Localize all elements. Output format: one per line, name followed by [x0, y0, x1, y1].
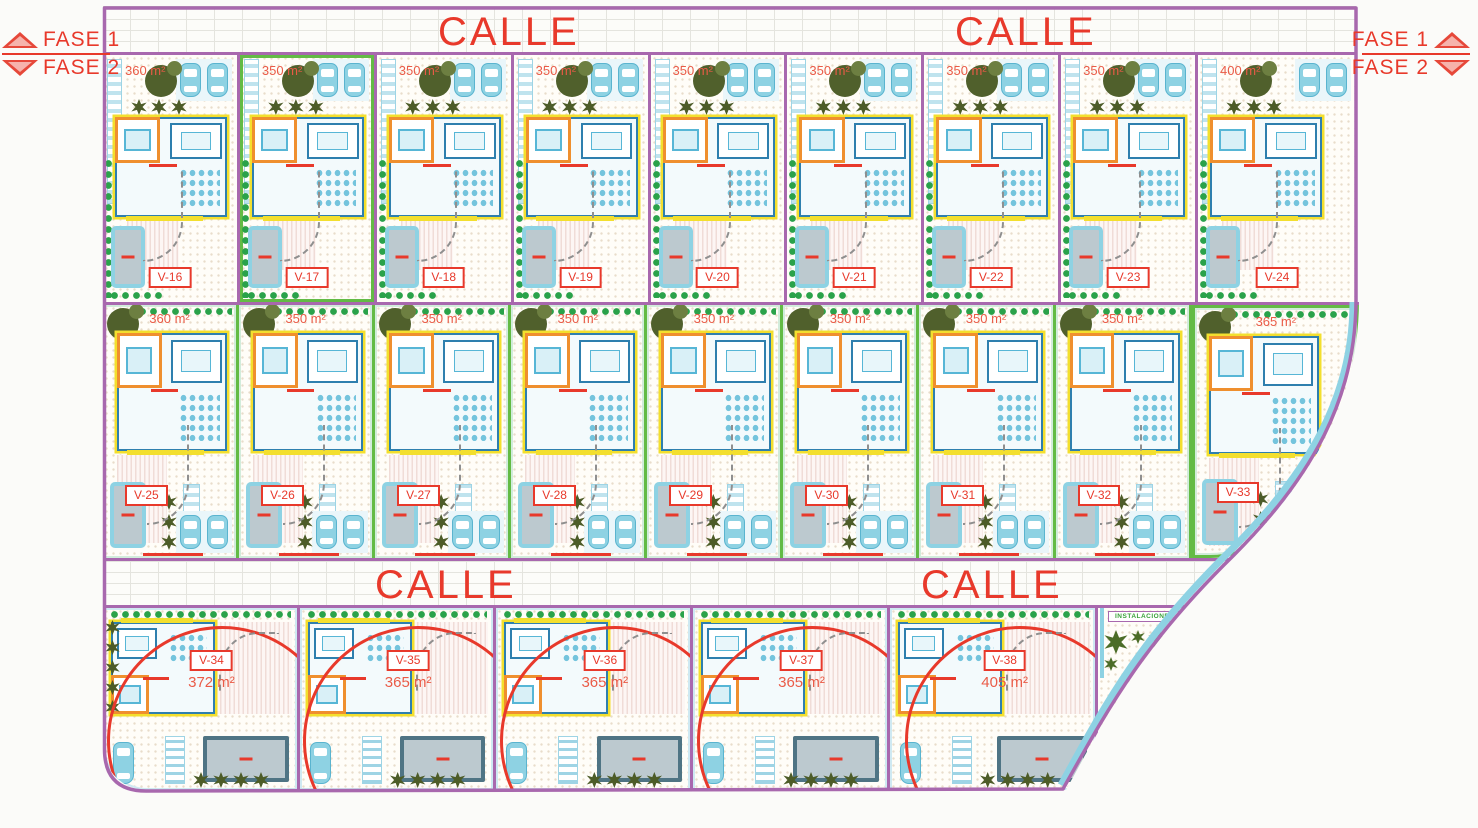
- plot-V-16: 360 m² V-16: [103, 55, 240, 302]
- parking-cars-icon: [176, 511, 232, 553]
- parking-cars-icon: [720, 511, 776, 553]
- wall-accent: [1242, 392, 1270, 395]
- room: [526, 117, 571, 163]
- room: [525, 333, 570, 388]
- car-icon: [452, 515, 473, 549]
- fase1-label: FASE 1: [1352, 28, 1429, 52]
- parking-cars-icon: [313, 59, 369, 101]
- shrub-icon: [1266, 99, 1282, 115]
- pool: [248, 226, 282, 288]
- plot-area-label: 350 m²: [966, 311, 1006, 326]
- shrub-icon: [1226, 99, 1242, 115]
- plot-V-28: 350 m² V-28: [511, 305, 647, 558]
- shrub-icon: [268, 99, 284, 115]
- hedge: [1067, 291, 1122, 300]
- street-label-calle-top-2: CALLE: [955, 10, 1097, 55]
- car-icon: [618, 63, 639, 97]
- plot-area-label: 405 m²: [981, 674, 1028, 691]
- street-top: CALLE CALLE: [103, 6, 1356, 55]
- wall-accent: [151, 389, 179, 392]
- car-icon: [724, 515, 745, 549]
- shrub-icon: [699, 99, 715, 115]
- car-icon: [1326, 63, 1347, 97]
- plot-id-badge: V-31: [941, 485, 984, 506]
- room: [171, 340, 222, 383]
- wall-accent: [423, 389, 451, 392]
- hedge: [930, 291, 985, 300]
- driveway-mark: [1243, 550, 1316, 553]
- plot-V-21: 350 m² V-21: [787, 55, 924, 302]
- pool: [385, 226, 419, 288]
- room: [663, 117, 708, 163]
- plot-id-badge: V-36: [583, 650, 626, 671]
- plot-area-label: 350 m²: [673, 63, 713, 78]
- shrub-icon: [719, 99, 735, 115]
- instalaciones-label: INSTALACIONES: [1108, 611, 1181, 622]
- furniture: [179, 168, 220, 208]
- parking-cars-icon: [1295, 59, 1351, 101]
- shrub-icon: [445, 99, 461, 115]
- plot-area-label: 350 m²: [1102, 311, 1142, 326]
- room: [933, 333, 978, 388]
- plot-id-badge: V-20: [696, 267, 739, 288]
- car-icon: [317, 63, 338, 97]
- street-label-calle-top-1: CALLE: [438, 10, 580, 55]
- stair-strip: [711, 618, 783, 623]
- wall-accent: [695, 389, 723, 392]
- shrub-icons: [1226, 99, 1282, 115]
- fase2-label: FASE 2: [1352, 56, 1429, 80]
- parking-cars-icon: [584, 511, 640, 553]
- palm-trees-icon: [1104, 630, 1184, 671]
- plot-V-20: 350 m² V-20: [651, 55, 788, 302]
- plot-area-label: 350 m²: [1083, 63, 1123, 78]
- shrub-icon: [1129, 99, 1145, 115]
- wall-accent: [423, 164, 451, 167]
- room: [854, 123, 906, 159]
- shrub-icon: [569, 534, 585, 550]
- shrub-icons: [952, 99, 1008, 115]
- parking-cars-icon: [860, 59, 916, 101]
- car-icon: [591, 63, 612, 97]
- plot-id-badge: V-23: [1107, 267, 1150, 288]
- furniture: [726, 168, 767, 208]
- plot-area-label: 365 m²: [1256, 314, 1296, 329]
- shrub-icon: [308, 99, 324, 115]
- room: [579, 340, 630, 383]
- shrub-icon: [1246, 99, 1262, 115]
- room: [904, 628, 944, 660]
- plot-V-17: 350 m² V-17: [240, 55, 377, 302]
- car-icon: [180, 63, 201, 97]
- room: [253, 333, 298, 388]
- fase2-label: FASE 2: [43, 56, 120, 80]
- plot-id-badge: V-35: [387, 650, 430, 671]
- plot-area-label: 350 m²: [946, 63, 986, 78]
- plot-area-label: 360 m²: [125, 63, 165, 78]
- car-icon: [1133, 515, 1154, 549]
- plot-V-30: 350 m² V-30: [783, 305, 919, 558]
- shrub-icon: [1089, 99, 1105, 115]
- shrub-icon: [705, 534, 721, 550]
- plot-id-badge: V-27: [397, 485, 440, 506]
- plot-id-badge: V-18: [422, 267, 465, 288]
- row-bottom: V-34 372 m² V-35 365 m²: [103, 608, 1098, 790]
- shrub-icons: [815, 99, 871, 115]
- plot-V-19: 350 m² V-19: [514, 55, 651, 302]
- plot-V-27: 350 m² V-27: [375, 305, 511, 558]
- site-plan-canvas: { "legend": { "fase1": "FASE 1", "fase2"…: [0, 0, 1478, 828]
- car-icon: [615, 515, 636, 549]
- shrub-icon: [582, 99, 598, 115]
- car-icon: [180, 515, 201, 549]
- shrub-icon: [405, 99, 421, 115]
- car-icon: [1138, 63, 1159, 97]
- fase1-triangle-icon: [1434, 32, 1470, 48]
- room: [307, 340, 358, 383]
- shrub-icon: [952, 99, 968, 115]
- hedge: [109, 291, 164, 300]
- shrub-icon: [1109, 99, 1125, 115]
- pool: [111, 226, 145, 288]
- car-icon: [316, 515, 337, 549]
- wall-accent: [1108, 164, 1136, 167]
- shrub-icon: [131, 99, 147, 115]
- car-icon: [207, 515, 228, 549]
- plot-id-badge: V-38: [983, 650, 1026, 671]
- plot-area-label: 350 m²: [421, 311, 461, 326]
- plot-area-label: 365 m²: [581, 674, 628, 691]
- street-label-calle-mid-1: CALLE: [375, 563, 517, 608]
- hedge: [793, 291, 848, 300]
- plot-id-badge: V-30: [805, 485, 848, 506]
- shrub-icon: [151, 99, 167, 115]
- parking-cars-icon: [723, 59, 779, 101]
- room: [1070, 333, 1115, 388]
- hedge: [383, 291, 438, 300]
- car-icon: [1001, 63, 1022, 97]
- plot-id-badge: V-28: [533, 485, 576, 506]
- room: [389, 333, 434, 388]
- plot-V-32: 350 m² V-32: [1056, 305, 1192, 558]
- plot-V-33: 365 m² V-33: [1192, 305, 1360, 558]
- plot-V-35: V-35 365 m²: [300, 608, 497, 790]
- corner-area: INSTALACIONES: [1098, 608, 1216, 790]
- plot-area-label: 350 m²: [399, 63, 439, 78]
- stair-strip: [908, 618, 980, 623]
- palm-icon: [1104, 657, 1118, 671]
- shrub-icon: [288, 99, 304, 115]
- car-icon: [754, 63, 775, 97]
- pool: [1069, 226, 1103, 288]
- hedge: [520, 291, 575, 300]
- plot-id-badge: V-17: [285, 267, 328, 288]
- plot-area-label: 365 m²: [385, 674, 432, 691]
- furniture: [1137, 168, 1178, 208]
- wall-accent: [559, 389, 587, 392]
- furniture: [1274, 168, 1315, 208]
- pool: [1206, 226, 1240, 288]
- wall-accent: [834, 164, 862, 167]
- parking-cars-icon: [450, 59, 506, 101]
- car-icon: [343, 515, 364, 549]
- shrub-icon: [105, 660, 120, 675]
- hedge: [246, 291, 301, 300]
- plot-V-31: 350 m² V-31: [919, 305, 1055, 558]
- room: [1209, 336, 1254, 391]
- plot-id-badge: V-24: [1256, 267, 1299, 288]
- wall-accent: [967, 389, 995, 392]
- plot-area-label: 365 m²: [778, 674, 825, 691]
- room: [307, 123, 359, 159]
- driveway-mark: [823, 553, 883, 556]
- driveway-mark: [279, 553, 339, 556]
- plot-area-label: 350 m²: [694, 311, 734, 326]
- car-icon: [207, 63, 228, 97]
- shrub-icon: [171, 99, 187, 115]
- wall-accent: [971, 164, 999, 167]
- plot-V-25: 360 m² V-25: [103, 305, 239, 558]
- shrub-icon: [562, 99, 578, 115]
- plot-id-badge: V-22: [970, 267, 1013, 288]
- stair-strip: [121, 618, 193, 623]
- street-middle: CALLE CALLE: [103, 558, 1233, 608]
- pool: [932, 226, 966, 288]
- plot-id-badge: V-16: [149, 267, 192, 288]
- car-icon: [891, 63, 912, 97]
- car-icon: [588, 515, 609, 549]
- parking-cars-icon: [448, 511, 504, 553]
- room: [1124, 340, 1175, 383]
- shrub-icons: [131, 99, 187, 115]
- car-icon: [481, 63, 502, 97]
- fase2-triangle-icon: [2, 60, 38, 76]
- furniture: [452, 168, 493, 208]
- shrub-icons: [405, 99, 461, 115]
- room: [715, 340, 766, 383]
- wall-accent: [1244, 164, 1272, 167]
- hedge: [657, 291, 712, 300]
- fase-legend-right: FASE 1 FASE 2: [1362, 27, 1470, 81]
- room: [717, 123, 769, 159]
- shrub-icon: [855, 99, 871, 115]
- palm-icon: [1148, 630, 1172, 654]
- room: [389, 117, 434, 163]
- plot-V-23: 350 m² V-23: [1061, 55, 1198, 302]
- shrub-icon: [835, 99, 851, 115]
- plot-area-label: 350 m²: [558, 311, 598, 326]
- wall-accent: [1103, 389, 1131, 392]
- room: [252, 117, 297, 163]
- car-icon: [1165, 63, 1186, 97]
- car-icon: [1024, 515, 1045, 549]
- parking-cars-icon: [856, 511, 912, 553]
- car-icon: [727, 63, 748, 97]
- driveway-mark: [959, 553, 1019, 556]
- shrub-icons: [542, 99, 598, 115]
- room: [1210, 117, 1255, 163]
- street-label-calle-mid-2: CALLE: [921, 563, 1063, 608]
- car-icon: [997, 515, 1018, 549]
- room: [117, 333, 162, 388]
- plot-V-22: 350 m² V-22: [924, 55, 1061, 302]
- wall-accent: [287, 389, 315, 392]
- plot-id-badge: V-21: [833, 267, 876, 288]
- plot-id-badge: V-19: [559, 267, 602, 288]
- fase1-row: FASE 1: [2, 27, 110, 53]
- driveway-mark: [551, 553, 611, 556]
- palm-icon: [1104, 630, 1128, 654]
- row-top: 360 m² V-16 350 m²: [103, 55, 1356, 302]
- shrub-icon: [542, 99, 558, 115]
- shrub-icon: [992, 99, 1008, 115]
- fase2-triangle-icon: [1434, 60, 1470, 76]
- wall-accent: [697, 164, 725, 167]
- fase1-row: FASE 1: [1362, 27, 1470, 53]
- parking-cars-icon: [993, 511, 1049, 553]
- stair-strip: [318, 618, 390, 623]
- plot-V-29: 350 m² V-29: [647, 305, 783, 558]
- room: [1265, 123, 1317, 159]
- car-icon: [860, 515, 881, 549]
- car-icon: [1299, 63, 1320, 97]
- shrub-icon: [105, 640, 120, 655]
- shrub-icon: [1253, 531, 1269, 547]
- shrub-icon: [977, 534, 993, 550]
- room: [1263, 343, 1314, 386]
- shrub-icon: [105, 620, 120, 635]
- plot-area-label: 400 m²: [1220, 63, 1260, 78]
- shrub-icon: [815, 99, 831, 115]
- parking-cars-icon: [587, 59, 643, 101]
- room: [797, 333, 842, 388]
- shrub-icons: [268, 99, 324, 115]
- room: [991, 123, 1043, 159]
- plot-V-18: 350 m² V-18: [377, 55, 514, 302]
- plot-V-24: 400 m² V-24: [1198, 55, 1356, 302]
- plot-id-badge: V-33: [1217, 482, 1260, 503]
- furniture: [315, 168, 356, 208]
- shrub-icon: [972, 99, 988, 115]
- room: [987, 340, 1038, 383]
- car-icon: [1028, 63, 1049, 97]
- furniture: [589, 168, 630, 208]
- room: [661, 333, 706, 388]
- furniture: [1000, 168, 1041, 208]
- pool: [522, 226, 556, 288]
- plot-id-badge: V-26: [261, 485, 304, 506]
- plot-id-badge: V-25: [125, 485, 168, 506]
- wall-accent: [286, 164, 314, 167]
- plot-V-26: 350 m² V-26: [239, 305, 375, 558]
- shrub-icon: [841, 534, 857, 550]
- room: [444, 123, 496, 159]
- plot-id-badge: V-37: [780, 650, 823, 671]
- shrub-icon: [297, 534, 313, 550]
- car-icon: [454, 63, 475, 97]
- shrub-icon: [161, 534, 177, 550]
- wall-accent: [831, 389, 859, 392]
- fase2-row: FASE 2: [2, 55, 110, 81]
- palm-icon: [1131, 630, 1145, 644]
- parking-cars-icon: [997, 59, 1053, 101]
- car-icon: [479, 515, 500, 549]
- room: [1073, 117, 1118, 163]
- plot-V-38: V-38 405 m²: [890, 608, 1098, 790]
- shrub-icon: [425, 99, 441, 115]
- fase1-label: FASE 1: [43, 28, 120, 52]
- shrub-icons: [679, 99, 735, 115]
- shrub-icons: [1089, 99, 1145, 115]
- room: [799, 117, 844, 163]
- room: [115, 117, 160, 163]
- wall-accent: [560, 164, 588, 167]
- parking-cars-icon: [1297, 508, 1353, 550]
- car-icon: [887, 515, 908, 549]
- driveway-mark: [143, 553, 203, 556]
- plot-V-36: V-36 365 m²: [496, 608, 693, 790]
- car-icon: [864, 63, 885, 97]
- room: [581, 123, 633, 159]
- car-icon: [1328, 512, 1349, 546]
- plot-V-34: V-34 372 m²: [103, 608, 300, 790]
- pool: [795, 226, 829, 288]
- driveway-mark: [687, 553, 747, 556]
- stair-strip: [514, 618, 586, 623]
- room: [936, 117, 981, 163]
- plot-area-label: 350 m²: [830, 311, 870, 326]
- fase1-triangle-icon: [2, 32, 38, 48]
- shrub-icon: [433, 534, 449, 550]
- driveway-mark: [415, 553, 475, 556]
- room: [851, 340, 902, 383]
- hedge: [1204, 291, 1259, 300]
- shrub-icon: [679, 99, 695, 115]
- room: [1128, 123, 1180, 159]
- room: [443, 340, 494, 383]
- fase-legend-left: FASE 1 FASE 2: [2, 27, 110, 81]
- row-middle: 360 m² V-25 350 m²: [103, 302, 1360, 558]
- car-icon: [344, 63, 365, 97]
- parking-cars-icon: [1134, 59, 1190, 101]
- wall-accent: [149, 164, 177, 167]
- driveway-mark: [1095, 553, 1155, 556]
- plot-area-label: 350 m²: [536, 63, 576, 78]
- parking-cars-icon: [1129, 511, 1185, 553]
- shrub-icon: [1114, 534, 1130, 550]
- car-icon: [1160, 515, 1181, 549]
- plot-area-label: 360 m²: [149, 311, 189, 326]
- parking-cars-icon: [312, 511, 368, 553]
- plot-area-label: 350 m²: [285, 311, 325, 326]
- room: [170, 123, 222, 159]
- furniture: [863, 168, 904, 208]
- parking-cars-icon: [176, 59, 232, 101]
- plot-area-label: 372 m²: [188, 674, 235, 691]
- pool: [659, 226, 693, 288]
- fase2-row: FASE 2: [1362, 55, 1470, 81]
- plot-V-37: V-37 365 m²: [693, 608, 890, 790]
- plot-id-badge: V-29: [669, 485, 712, 506]
- plot-id-badge: V-32: [1078, 485, 1121, 506]
- car-icon: [751, 515, 772, 549]
- car-icon: [1301, 512, 1322, 546]
- plot-area-label: 350 m²: [809, 63, 849, 78]
- plot-area-label: 350 m²: [262, 63, 302, 78]
- plot-id-badge: V-34: [190, 650, 233, 671]
